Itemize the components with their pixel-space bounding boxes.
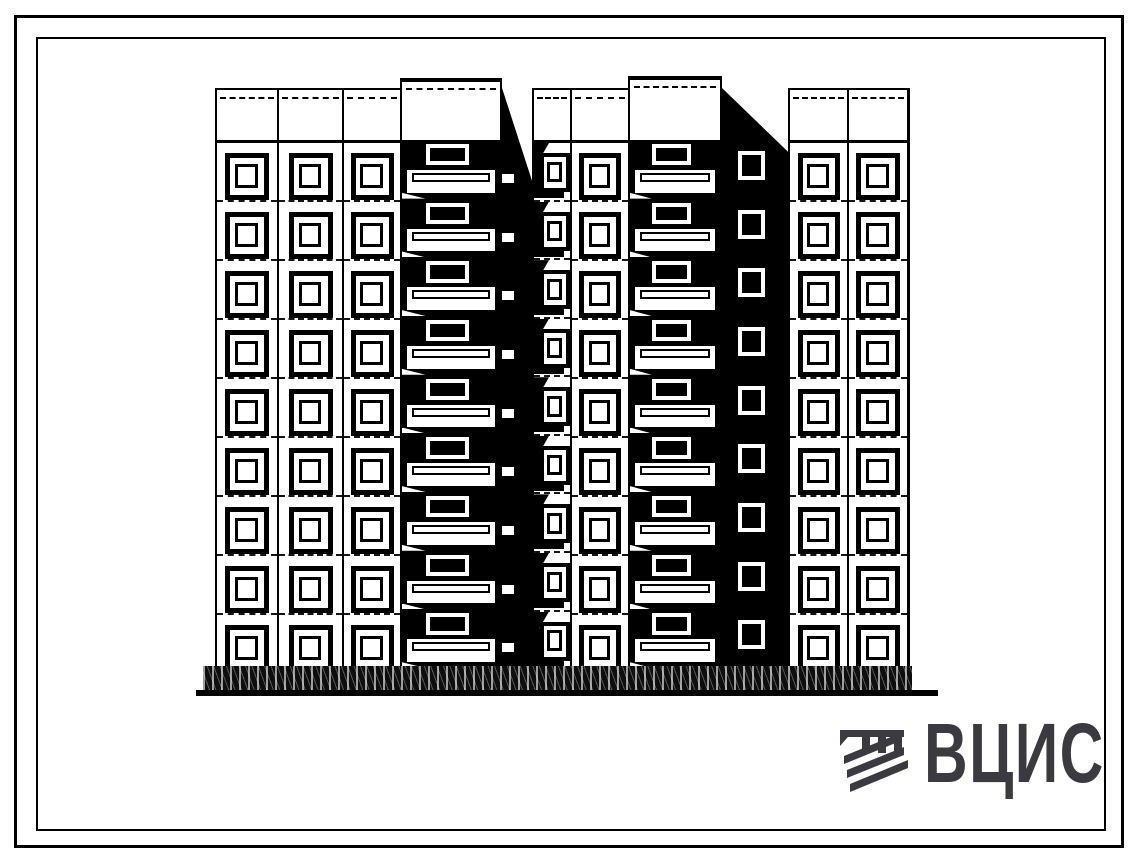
floor-panel: [790, 318, 847, 377]
floor-panel: [849, 377, 907, 436]
stair-window: [738, 210, 765, 239]
floor-panel: [790, 495, 847, 554]
balcony-door: [652, 261, 692, 282]
window: [225, 271, 269, 318]
floor-panel: [344, 554, 400, 613]
stair-window: [738, 268, 765, 297]
floor-panel: [534, 200, 570, 259]
balcony-slab-end: [502, 409, 514, 418]
stair-window: [738, 562, 765, 591]
window: [579, 330, 621, 377]
balcony-module: [402, 492, 500, 551]
balcony-door: [652, 555, 692, 576]
balcony-slab-end: [502, 643, 514, 652]
balcony-module: [630, 257, 720, 316]
floor-panel: [849, 554, 907, 613]
window: [540, 270, 570, 309]
window: [579, 212, 621, 259]
balcony-railing: [404, 519, 497, 548]
window: [225, 566, 269, 613]
window: [540, 212, 570, 251]
floor-panel: [572, 318, 628, 377]
shadow-strip-strip-1: [502, 88, 532, 668]
floor-panel: [344, 143, 400, 200]
floor-panel: [572, 143, 628, 200]
floor-panel: [849, 318, 907, 377]
balcony-railing: [404, 460, 497, 489]
stair-window: [738, 620, 765, 649]
window: [225, 330, 269, 377]
window: [798, 625, 840, 672]
balcony-railing: [632, 578, 718, 607]
shadow-strip-strip-2: [722, 88, 788, 668]
floor-panel: [572, 613, 628, 672]
floor-panel: [534, 492, 570, 551]
window: [856, 271, 900, 318]
balcony-door: [426, 613, 469, 634]
window: [856, 212, 900, 259]
window: [798, 212, 840, 259]
window: [579, 625, 621, 672]
window: [225, 625, 269, 672]
floor-panel: [279, 554, 342, 613]
shaft-top-block: [402, 78, 500, 140]
floor-panel: [790, 554, 847, 613]
floor-panel: [534, 610, 570, 669]
window: [351, 566, 394, 613]
balcony-door: [426, 203, 469, 224]
balcony-slab-end: [502, 174, 514, 183]
floor-panel: [790, 200, 847, 259]
window: [579, 566, 621, 613]
balcony-door: [652, 496, 692, 517]
window: [225, 212, 269, 259]
balcony-module: [402, 551, 500, 610]
balcony-railing: [632, 519, 718, 548]
facade-column-col-f: [788, 88, 847, 668]
window: [540, 153, 570, 192]
balcony-railing: [632, 460, 718, 489]
floor-panel: [279, 377, 342, 436]
balcony-railing: [632, 636, 718, 665]
vcis-logo: ВЦИС: [830, 708, 1134, 794]
floor-panel: [849, 613, 907, 672]
balcony-module: [630, 375, 720, 434]
window: [856, 153, 900, 200]
balcony-slab-end: [502, 233, 514, 242]
window: [540, 329, 570, 368]
balcony-door: [426, 555, 469, 576]
balcony-railing: [404, 167, 497, 196]
window: [540, 622, 570, 661]
window: [579, 271, 621, 318]
floor-panel: [534, 317, 570, 376]
window: [540, 504, 570, 543]
window: [798, 566, 840, 613]
window: [856, 448, 900, 495]
balcony-module: [402, 433, 500, 492]
floor-panel: [217, 143, 277, 200]
balcony-railing: [632, 167, 718, 196]
floor-panel: [344, 377, 400, 436]
window: [289, 566, 333, 613]
parapet-panel: [790, 90, 847, 143]
balcony-slab-end: [502, 350, 514, 359]
balcony-module: [402, 140, 500, 199]
window: [351, 507, 394, 554]
floor-panel: [217, 377, 277, 436]
facade-column-col-a: [215, 88, 277, 668]
balcony-slab-end: [502, 585, 514, 594]
balcony-module: [402, 316, 500, 375]
balcony-door: [652, 144, 692, 165]
parapet-panel: [344, 90, 400, 143]
balcony-module: [402, 257, 500, 316]
window: [351, 389, 394, 436]
floor-panel: [217, 259, 277, 318]
balcony-door: [426, 437, 469, 458]
window: [540, 563, 570, 602]
floor-panel: [279, 613, 342, 672]
floor-panel: [572, 259, 628, 318]
balcony-railing: [632, 402, 718, 431]
balcony-door: [652, 437, 692, 458]
balcony-module: [402, 609, 500, 668]
floor-panel: [279, 143, 342, 200]
stair-window: [738, 151, 765, 180]
floor-panel: [534, 375, 570, 434]
window: [798, 330, 840, 377]
floor-panel: [790, 143, 847, 200]
floor-panel: [279, 436, 342, 495]
facade-column-col-e: [570, 88, 628, 668]
window: [225, 389, 269, 436]
floor-panel: [849, 495, 907, 554]
balcony-module: [630, 609, 720, 668]
window: [225, 153, 269, 200]
balcony-door: [426, 379, 469, 400]
floor-panel: [217, 436, 277, 495]
window: [289, 507, 333, 554]
balcony-module: [630, 199, 720, 258]
balcony-railing: [632, 284, 718, 313]
vcis-logo-text: ВЦИС: [924, 712, 1105, 794]
balcony-slab-end: [502, 467, 514, 476]
balcony-railing: [404, 402, 497, 431]
window: [351, 212, 394, 259]
window: [579, 389, 621, 436]
floor-panel: [572, 495, 628, 554]
balcony-module: [402, 199, 500, 258]
stair-window: [738, 386, 765, 415]
window: [289, 212, 333, 259]
window: [540, 446, 570, 485]
balcony-module: [630, 551, 720, 610]
parapet-panel: [217, 90, 277, 143]
floor-panel: [534, 143, 570, 200]
balcony-door: [652, 320, 692, 341]
floor-panel: [534, 551, 570, 610]
window: [225, 448, 269, 495]
floor-panel: [279, 318, 342, 377]
window: [579, 507, 621, 554]
floor-panel: [344, 495, 400, 554]
floor-panel: [217, 495, 277, 554]
stair-window: [738, 503, 765, 532]
balcony-slab-end: [502, 526, 514, 535]
balcony-slab-end: [502, 291, 514, 300]
parapet-panel: [279, 90, 342, 143]
balcony-door: [652, 379, 692, 400]
window: [351, 448, 394, 495]
balcony-railing: [632, 226, 718, 255]
floor-panel: [790, 436, 847, 495]
vcis-logo-icon: [830, 708, 914, 792]
building-base-strip: [203, 666, 912, 691]
floor-panel: [344, 318, 400, 377]
scanned-sheet: ВЦИС: [0, 0, 1134, 863]
window: [289, 271, 333, 318]
balcony-module: [402, 375, 500, 434]
window: [351, 625, 394, 672]
floor-panel: [534, 434, 570, 493]
floor-panel: [279, 200, 342, 259]
facade-column-col-c: [342, 88, 400, 668]
window: [856, 507, 900, 554]
floor-panel: [344, 436, 400, 495]
balcony-door: [426, 496, 469, 517]
balcony-door: [426, 320, 469, 341]
balcony-door: [426, 261, 469, 282]
window: [856, 330, 900, 377]
facade-column-col-b: [277, 88, 342, 668]
balcony-door: [652, 613, 692, 634]
floor-panel: [790, 377, 847, 436]
window: [289, 330, 333, 377]
balcony-door: [652, 203, 692, 224]
floor-panel: [572, 554, 628, 613]
floor-panel: [572, 377, 628, 436]
window: [289, 153, 333, 200]
balcony-door: [426, 144, 469, 165]
balcony-railing: [404, 343, 497, 372]
balcony-railing: [404, 284, 497, 313]
balcony-railing: [404, 578, 497, 607]
balcony-module: [630, 140, 720, 199]
parapet-panel: [572, 90, 628, 143]
shaft-top-block: [630, 76, 720, 140]
floor-panel: [849, 436, 907, 495]
floor-panel: [344, 613, 400, 672]
facade-column-col-g: [847, 88, 910, 668]
ground-line: [196, 690, 938, 696]
balcony-railing: [404, 636, 497, 665]
window: [540, 387, 570, 426]
facade-column-col-d: [532, 88, 570, 668]
floor-panel: [790, 259, 847, 318]
window: [351, 330, 394, 377]
window: [289, 448, 333, 495]
floor-panel: [849, 200, 907, 259]
floor-panel: [344, 259, 400, 318]
window: [579, 153, 621, 200]
balcony-module: [630, 492, 720, 551]
floor-panel: [790, 613, 847, 672]
balcony-module: [630, 316, 720, 375]
window: [856, 389, 900, 436]
window: [579, 448, 621, 495]
balcony-railing: [404, 226, 497, 255]
parapet-panel: [534, 90, 570, 143]
floor-panel: [279, 495, 342, 554]
floor-panel: [344, 200, 400, 259]
stair-window: [738, 444, 765, 473]
window: [351, 153, 394, 200]
floor-panel: [572, 436, 628, 495]
balcony-railing: [632, 343, 718, 372]
window: [798, 271, 840, 318]
floor-panel: [217, 613, 277, 672]
window: [351, 271, 394, 318]
window: [289, 389, 333, 436]
parapet-panel: [849, 90, 907, 143]
balcony-shaft-shaft-2: [628, 76, 722, 668]
window: [856, 625, 900, 672]
window: [798, 389, 840, 436]
window: [798, 448, 840, 495]
window: [798, 507, 840, 554]
window: [856, 566, 900, 613]
window: [798, 153, 840, 200]
balcony-shaft-shaft-1: [400, 78, 502, 668]
floor-panel: [849, 259, 907, 318]
stair-window: [738, 327, 765, 356]
floor-panel: [279, 259, 342, 318]
window: [225, 507, 269, 554]
floor-panel: [849, 143, 907, 200]
floor-panel: [217, 200, 277, 259]
balcony-module: [630, 433, 720, 492]
floor-panel: [217, 318, 277, 377]
floor-panel: [572, 200, 628, 259]
floor-panel: [217, 554, 277, 613]
window: [289, 625, 333, 672]
floor-panel: [534, 258, 570, 317]
